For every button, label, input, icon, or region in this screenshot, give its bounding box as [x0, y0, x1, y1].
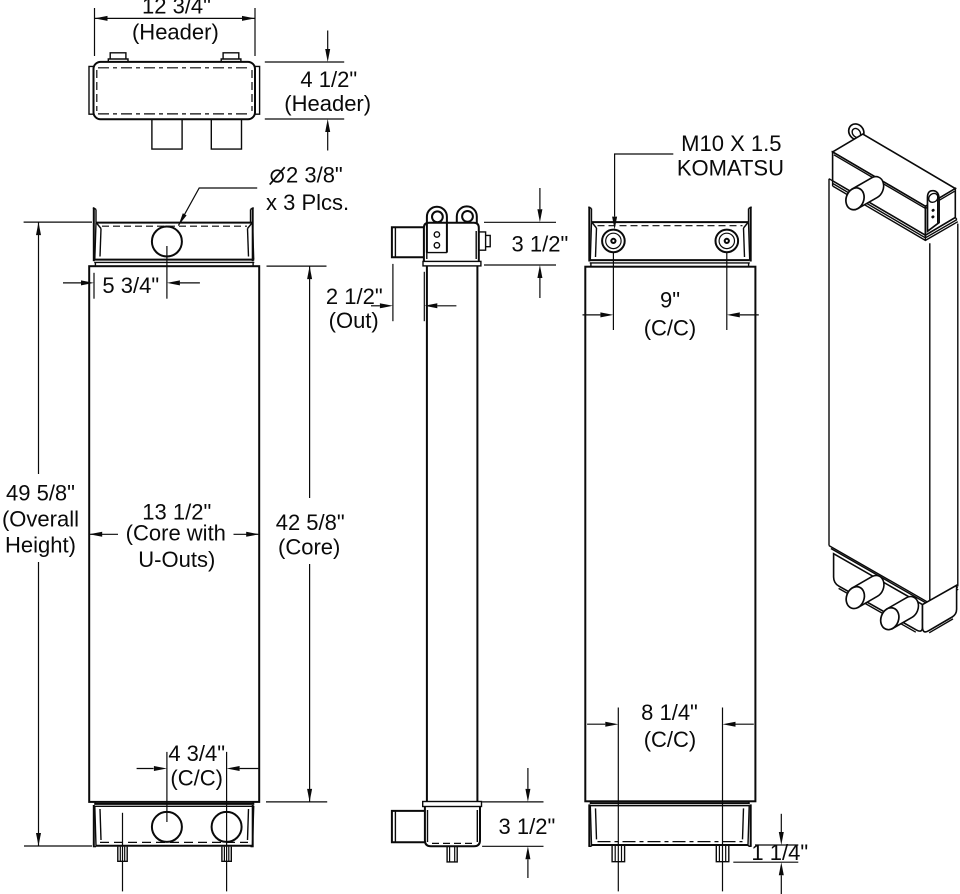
svg-text:4 3/4": 4 3/4": [168, 741, 225, 766]
svg-text:(Header): (Header): [284, 91, 371, 116]
svg-text:(Core): (Core): [278, 535, 340, 560]
svg-text:3 1/2": 3 1/2": [512, 232, 569, 257]
svg-text:1 1/4": 1 1/4": [751, 840, 808, 865]
svg-text:2 3/8": 2 3/8": [286, 163, 343, 188]
svg-text:49 5/8": 49 5/8": [6, 481, 75, 506]
svg-text:x 3 Plcs.: x 3 Plcs.: [266, 190, 349, 215]
svg-text:4 1/2": 4 1/2": [300, 67, 357, 92]
svg-text:M10 X 1.5: M10 X 1.5: [681, 131, 781, 156]
svg-text:5 3/4": 5 3/4": [102, 273, 159, 298]
svg-text:9": 9": [660, 288, 680, 313]
svg-text:2 1/2": 2 1/2": [326, 284, 383, 309]
svg-text:Height): Height): [5, 533, 76, 558]
svg-text:(Out): (Out): [329, 308, 379, 333]
svg-text:(C/C): (C/C): [644, 316, 697, 341]
svg-text:(Header): (Header): [132, 20, 219, 45]
svg-text:42 5/8": 42 5/8": [276, 510, 345, 535]
svg-text:8 1/4": 8 1/4": [641, 700, 698, 725]
svg-text:(C/C): (C/C): [170, 766, 223, 791]
svg-text:U-Outs): U-Outs): [138, 547, 215, 572]
svg-text:3 1/2": 3 1/2": [499, 814, 556, 839]
svg-text:(Core with: (Core with: [126, 521, 226, 546]
svg-text:(C/C): (C/C): [644, 727, 697, 752]
svg-text:12 3/4": 12 3/4": [142, 0, 211, 19]
svg-text:KOMATSU: KOMATSU: [677, 156, 784, 181]
svg-text:(Overall: (Overall: [2, 507, 79, 532]
